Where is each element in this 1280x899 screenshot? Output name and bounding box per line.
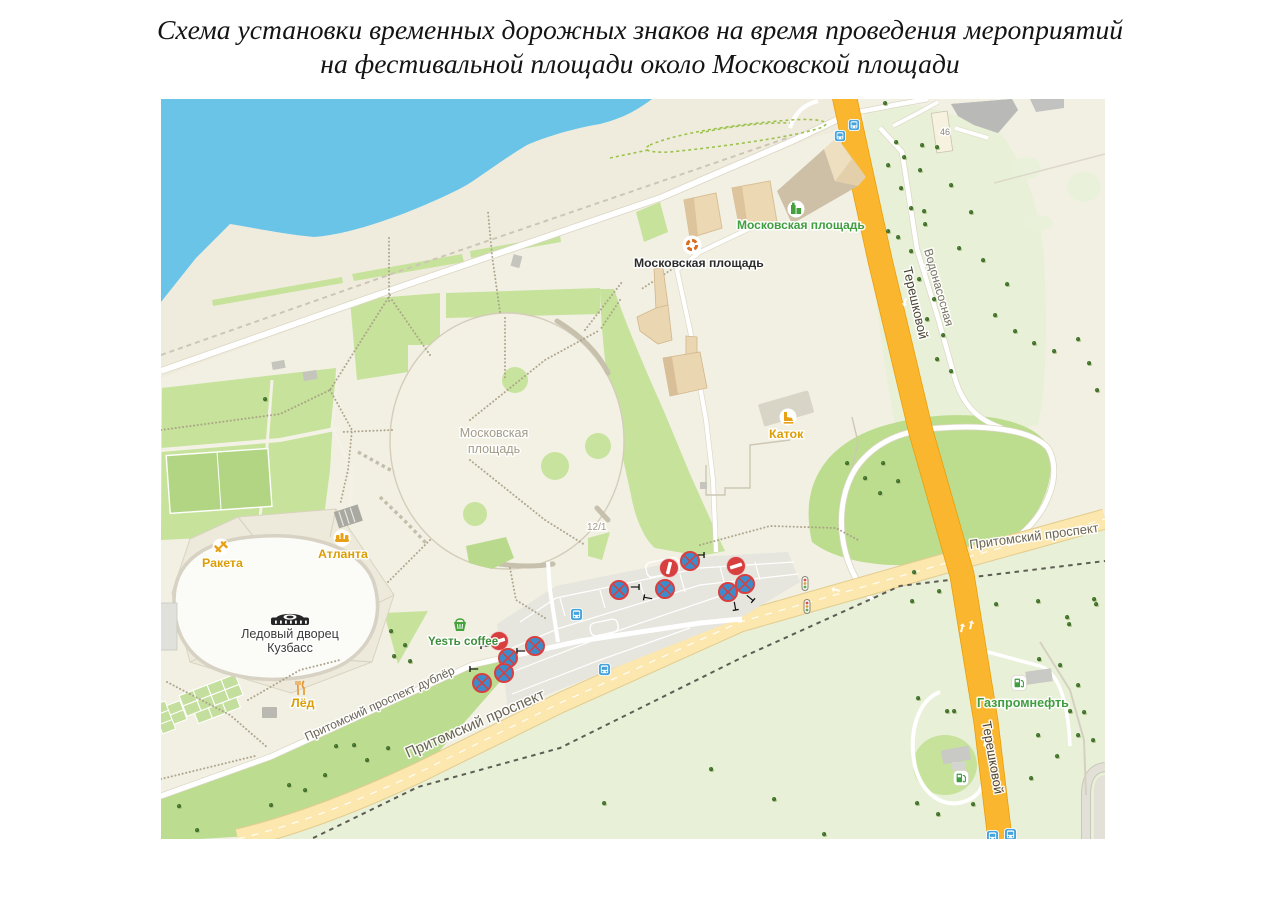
- svg-text:Газпромнефть: Газпромнефть: [977, 696, 1069, 710]
- svg-text:Кузбасс: Кузбасс: [267, 641, 313, 655]
- svg-text:Каток: Каток: [769, 427, 804, 441]
- svg-text:Атланта: Атланта: [318, 547, 368, 561]
- svg-text:46: 46: [940, 127, 950, 137]
- svg-text:Московская: Московская: [460, 426, 529, 440]
- svg-text:площадь: площадь: [468, 442, 520, 456]
- svg-text:Лёд: Лёд: [291, 696, 315, 710]
- svg-text:Ракета: Ракета: [202, 556, 243, 570]
- svg-text:12/1: 12/1: [587, 522, 607, 533]
- svg-text:Yesть coffee: Yesть coffee: [428, 635, 499, 648]
- svg-text:Московская площадь: Московская площадь: [634, 256, 764, 270]
- svg-text:Ледовый дворец: Ледовый дворец: [241, 627, 339, 641]
- svg-text:Московская площадь: Московская площадь: [737, 218, 865, 232]
